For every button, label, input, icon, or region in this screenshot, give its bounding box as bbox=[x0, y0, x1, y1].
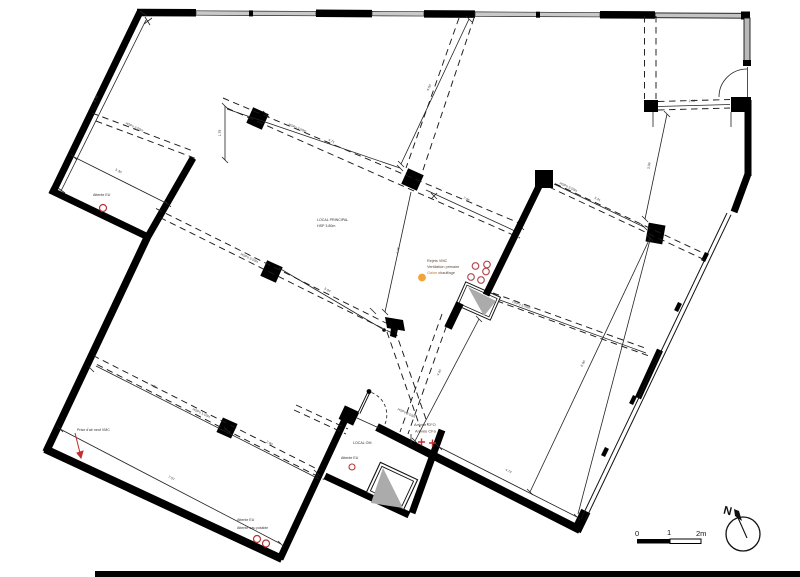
svg-text:Attente eau potable: Attente eau potable bbox=[237, 526, 268, 530]
svg-text:1: 1 bbox=[667, 528, 671, 537]
svg-text:HSP 3.80m: HSP 3.80m bbox=[317, 224, 335, 228]
svg-text:Attente EU: Attente EU bbox=[93, 193, 111, 197]
svg-text:LOCAL OM: LOCAL OM bbox=[353, 441, 371, 445]
svg-text:Prise d'air neuf VMC: Prise d'air neuf VMC bbox=[77, 428, 110, 432]
svg-text:Gaine chauffage: Gaine chauffage bbox=[427, 271, 455, 275]
svg-text:Ventilation primaire: Ventilation primaire bbox=[427, 265, 459, 269]
svg-text:Rejets VMC: Rejets VMC bbox=[427, 259, 448, 263]
svg-text:2m: 2m bbox=[696, 529, 706, 538]
svg-text:Attente EU: Attente EU bbox=[237, 518, 255, 522]
svg-text:Attente EU: Attente EU bbox=[341, 456, 359, 460]
svg-text:2.40: 2.40 bbox=[689, 99, 696, 103]
svg-text:0: 0 bbox=[635, 529, 639, 538]
svg-text:LOCAL PRINCIPAL: LOCAL PRINCIPAL bbox=[317, 218, 348, 222]
svg-text:Arrivée CFa: Arrivée CFa bbox=[415, 429, 437, 434]
svg-text:1.79: 1.79 bbox=[218, 130, 222, 137]
svg-text:Arrivée CFO: Arrivée CFO bbox=[414, 422, 436, 427]
